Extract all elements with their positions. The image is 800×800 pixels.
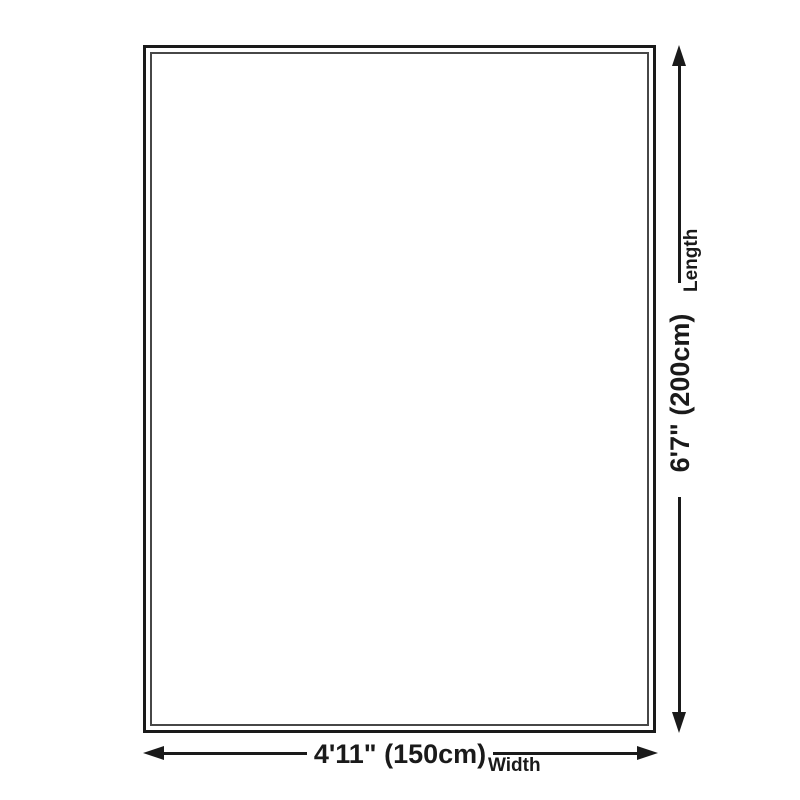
product-rectangle-inner-border xyxy=(150,52,649,726)
length-arrow-line-bottom xyxy=(678,497,681,719)
length-dimension-arrow: 6'7" (200cm) Length xyxy=(659,45,701,733)
product-rectangle xyxy=(143,45,656,733)
length-value: 6'7" (200cm) xyxy=(659,289,701,497)
length-label: Length xyxy=(682,229,701,292)
width-label: Width xyxy=(488,756,541,775)
width-arrow-line-left xyxy=(157,752,307,755)
arrowhead-right-icon xyxy=(637,746,658,760)
width-dimension-arrow: 4'11" (150cm) Width xyxy=(143,733,658,775)
arrowhead-up-icon xyxy=(672,45,686,66)
size-diagram: 4'11" (150cm) Width 6'7" (200cm) Length xyxy=(0,0,800,800)
width-value: 4'11" (150cm) xyxy=(307,733,493,775)
